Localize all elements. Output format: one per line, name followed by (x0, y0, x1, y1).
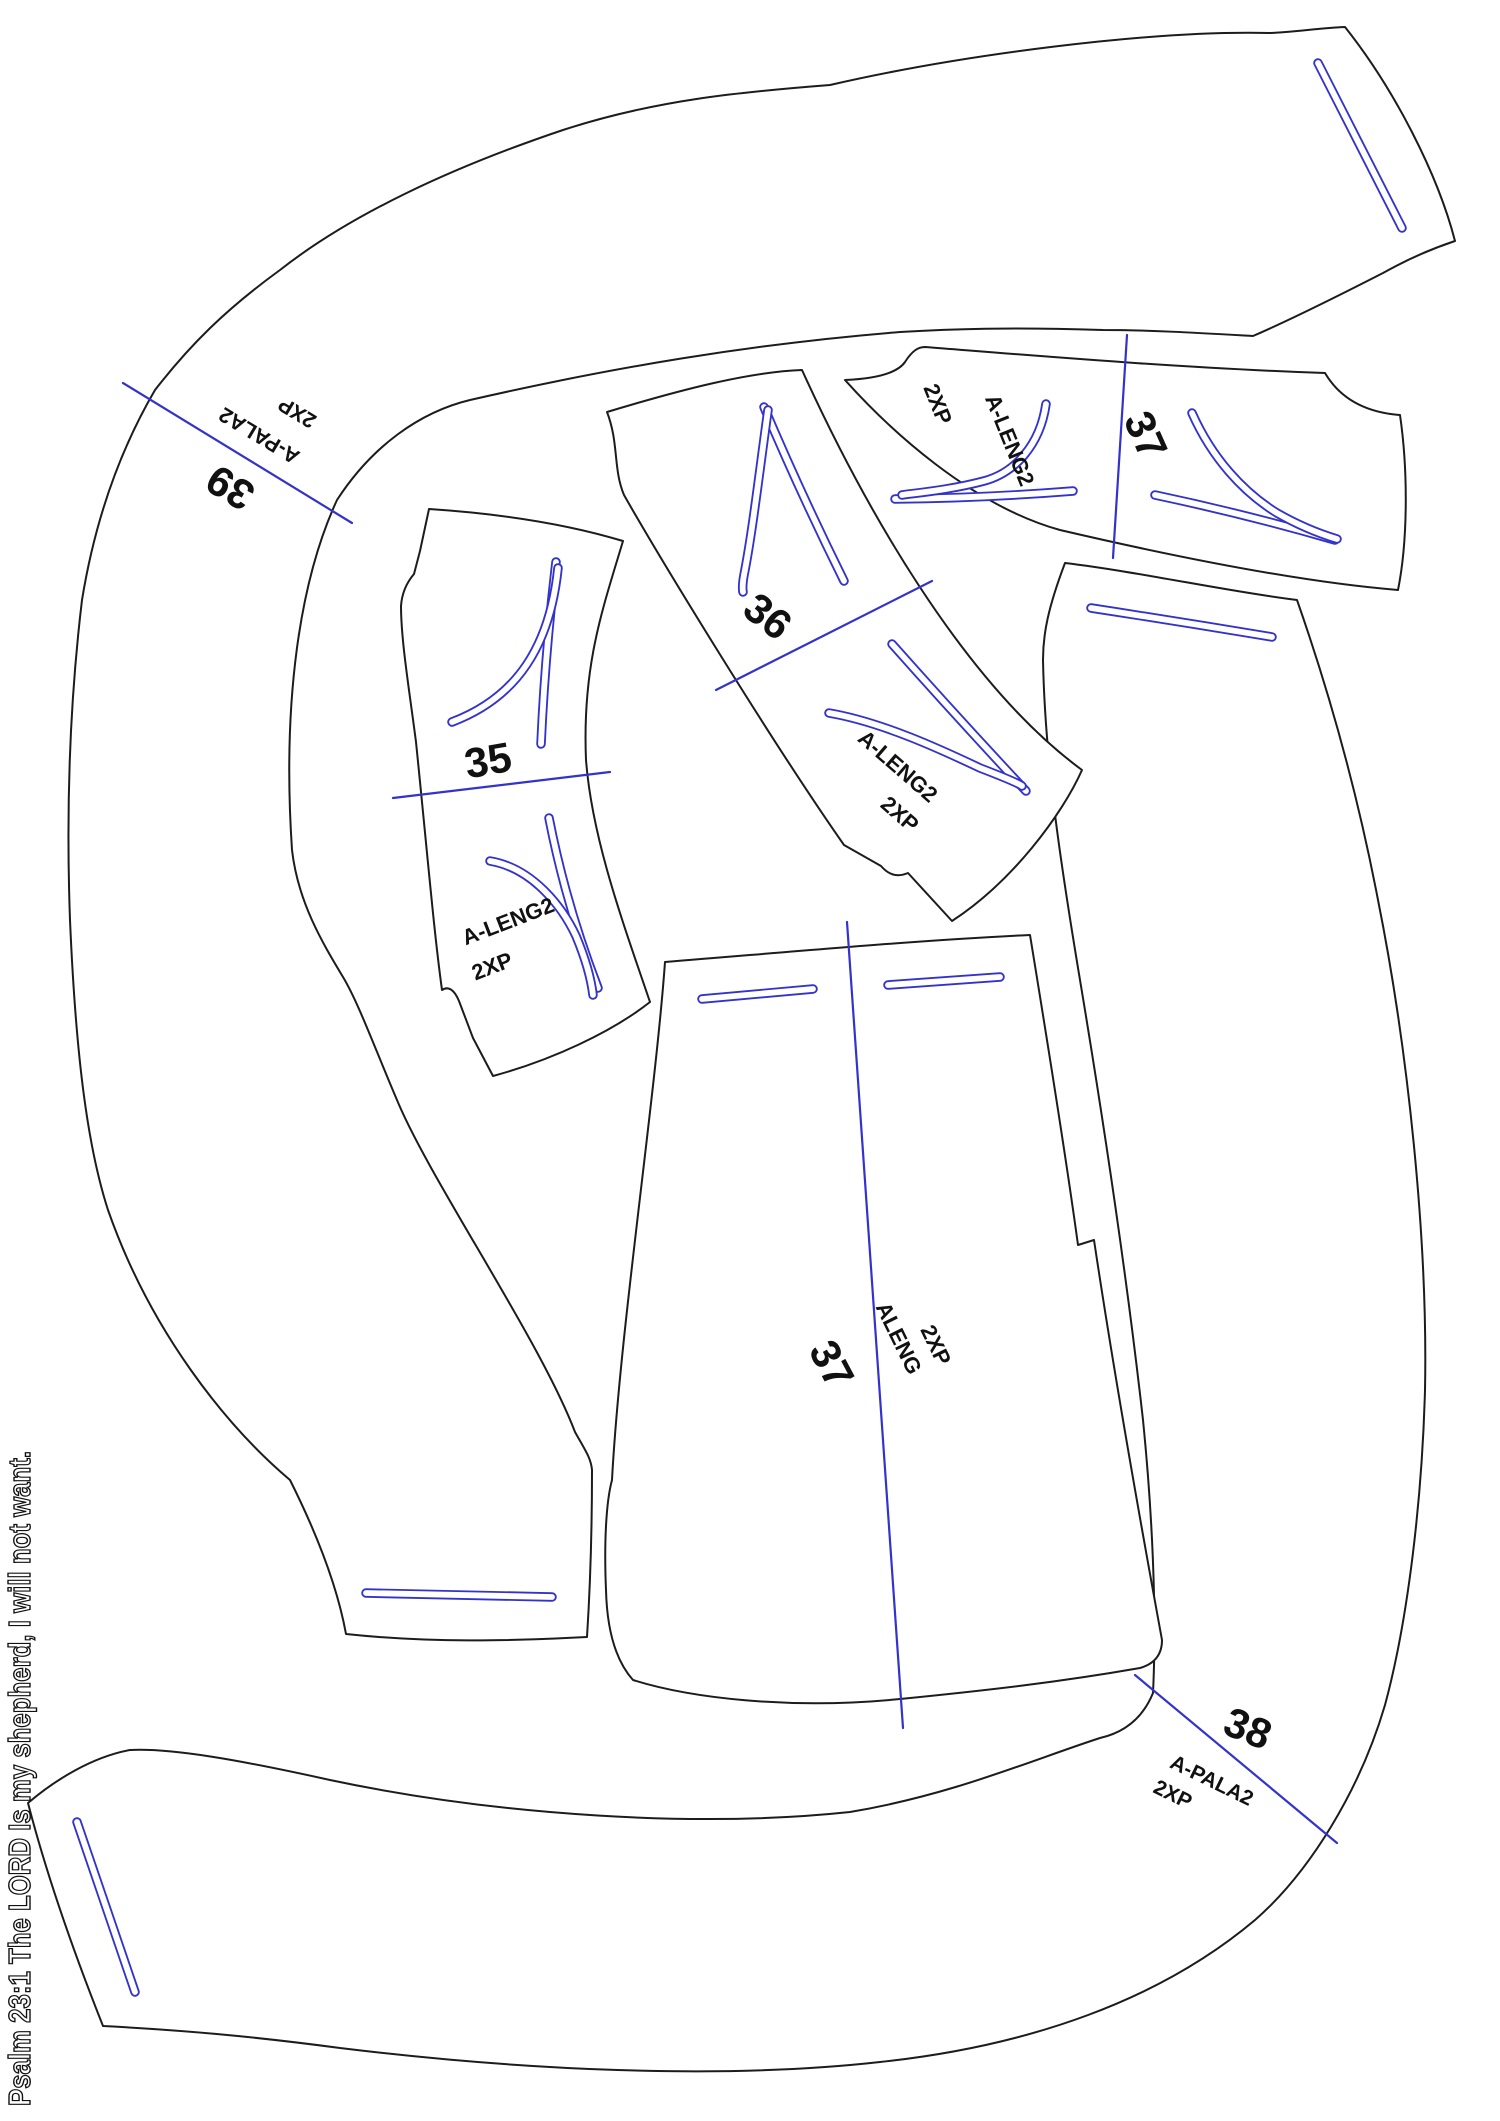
pattern-marker-page: 39 A-PALA2 2XP 35 A-LENG2 2XP 36 A-LENG2… (0, 0, 1500, 2121)
piece-35-size-label: 35 (461, 733, 515, 787)
notch-slit-39-tail (366, 1593, 552, 1597)
pattern-canvas: 39 A-PALA2 2XP 35 A-LENG2 2XP 36 A-LENG2… (0, 0, 1500, 2121)
piece-37-yoke-outline (845, 347, 1406, 590)
margin-verse-text: Psalm 23:1 The LORD Is my shepherd, I wi… (2, 1451, 37, 2106)
